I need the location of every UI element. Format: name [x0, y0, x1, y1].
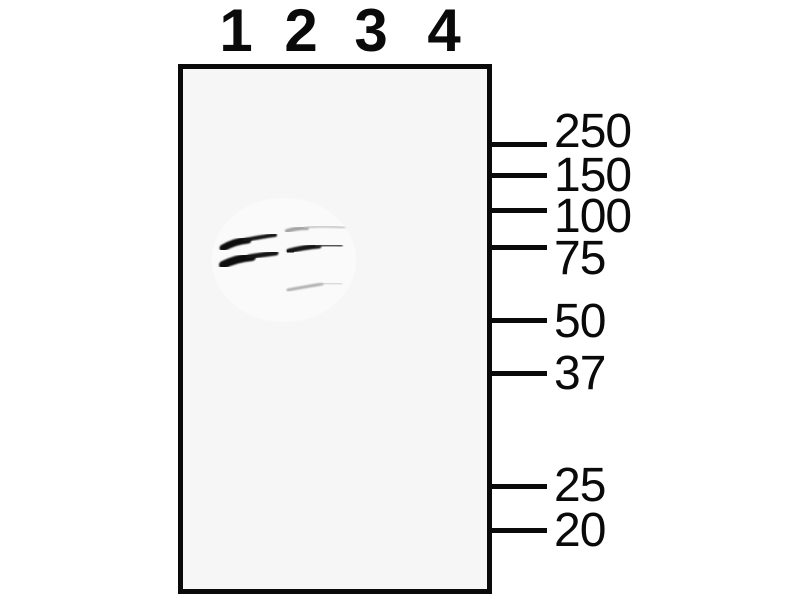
lane-label-1: 1 — [219, 2, 250, 60]
marker-tick-37 — [490, 371, 547, 376]
marker-weight-label-50: 50 — [554, 297, 605, 347]
marker-tick-25 — [490, 484, 547, 489]
marker-tick-150 — [490, 173, 547, 178]
marker-weight-label-37: 37 — [554, 349, 605, 399]
marker-tick-50 — [490, 318, 547, 323]
marker-tick-100 — [490, 208, 547, 213]
western-blot-figure: 1234 2501501007550372520 — [0, 0, 800, 600]
marker-tick-75 — [490, 245, 547, 250]
lane-label-2: 2 — [284, 2, 315, 60]
marker-weight-label-75: 75 — [554, 234, 605, 284]
lane-label-4: 4 — [427, 2, 458, 60]
blot-membrane — [178, 64, 492, 594]
marker-weight-label-20: 20 — [554, 506, 605, 556]
lane-label-3: 3 — [354, 2, 385, 60]
marker-tick-20 — [490, 528, 547, 533]
marker-tick-250 — [490, 142, 547, 147]
